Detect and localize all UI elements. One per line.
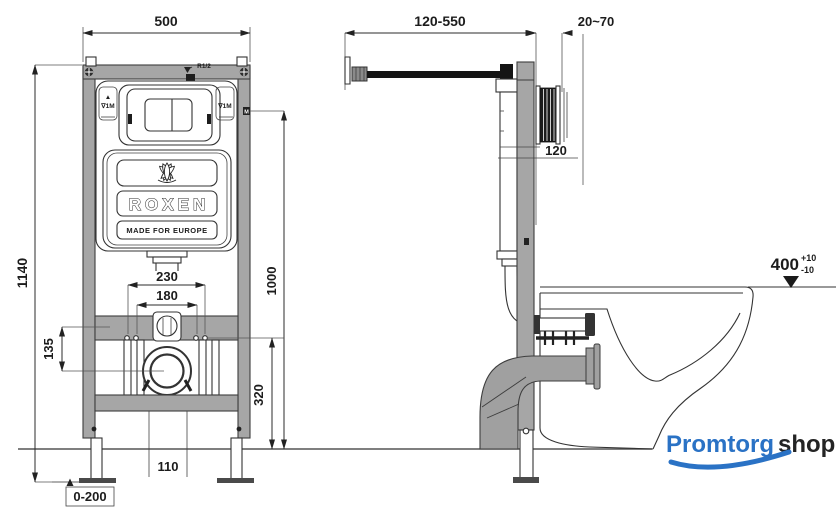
- cistern-body-side: [500, 92, 517, 251]
- leg-pin-right: [237, 427, 242, 432]
- dim-400-tol-minus: -10: [801, 265, 814, 275]
- dim-110: 110: [158, 459, 179, 474]
- mount-hole: [194, 336, 199, 341]
- dim-500: 500: [154, 13, 178, 29]
- mounting-studs: [534, 313, 595, 345]
- supply-union: [352, 67, 367, 81]
- dim-135: 135: [41, 338, 56, 360]
- water-supply: [345, 33, 513, 90]
- dim-1000: 1000: [264, 267, 279, 296]
- dim-1140: 1140: [14, 258, 30, 289]
- watermark-logo: Promtorg shop: [666, 431, 835, 467]
- flush-bellows: [536, 86, 567, 144]
- foot-plate-left: [79, 478, 116, 483]
- dim-400-tol-plus: +10: [801, 253, 816, 263]
- dim-230: 230: [156, 269, 178, 284]
- outlet-flange-lip: [594, 344, 600, 389]
- bellows-flange-right: [556, 86, 560, 144]
- height-arrow: [783, 276, 799, 288]
- dim-320: 320: [251, 384, 266, 406]
- frame-top-bar: [83, 65, 250, 79]
- post-foot: [513, 477, 539, 483]
- cistern-lid-side: [496, 79, 519, 92]
- dim-120-550: 120-550: [414, 13, 466, 29]
- watermark-primary: Promtorg: [666, 431, 774, 458]
- brand-text: ROXEN: [129, 195, 209, 214]
- plate-latch-right: [207, 114, 211, 124]
- supply-wall-elbow: [345, 57, 350, 84]
- dim-120: 120: [545, 143, 567, 158]
- foot-plate-right: [217, 478, 254, 483]
- cistern-neck-flange: [147, 251, 187, 257]
- supply-valve: [500, 64, 513, 81]
- level-mark-right: ∇1M: [217, 102, 231, 110]
- stud-column: [199, 340, 206, 395]
- dim-0-200: 0-200: [73, 489, 106, 504]
- side-dimensions: 120-550 20~70 120 400 +10 -10: [345, 13, 836, 288]
- cistern-neck: [153, 257, 181, 263]
- dim-400: 400: [771, 255, 799, 274]
- lower-crossbar: [95, 395, 238, 411]
- leg-right: [231, 438, 242, 479]
- drain-assembly: [95, 312, 238, 477]
- front-view: ▲ ∇1M ∇1M ROXEN MADE FOR EUROPE: [14, 13, 284, 506]
- stud-cap-right: [585, 313, 595, 336]
- tagline-text: MADE FOR EUROPE: [126, 226, 207, 235]
- stud-cap-left: [534, 315, 540, 334]
- stud-sleeve: [536, 318, 587, 331]
- drawing-canvas: ▲ ∇1M ∇1M ROXEN MADE FOR EUROPE: [0, 0, 840, 525]
- supply-pipe: [367, 71, 502, 78]
- adjustable-legs: [79, 427, 254, 483]
- level-mark-arrow: ▲: [105, 94, 111, 101]
- frame-right-rail: [238, 66, 250, 438]
- outlet-flange: [586, 348, 594, 384]
- frame-left-rail: [83, 66, 95, 438]
- stud-column: [124, 340, 131, 395]
- leg-left: [91, 438, 102, 479]
- level-m-mark-side: [524, 238, 529, 245]
- brand-panel: ROXEN MADE FOR EUROPE: [103, 150, 231, 271]
- post-leg: [520, 430, 533, 478]
- installation-drawing: ▲ ∇1M ∇1M ROXEN MADE FOR EUROPE: [0, 0, 840, 525]
- stud-column: [212, 340, 219, 395]
- leg-pin-left: [92, 427, 97, 432]
- hanger-ear-right: [237, 57, 247, 66]
- dim-180: 180: [156, 288, 178, 303]
- hanger-ear-left: [86, 57, 96, 66]
- level-mark-left: ∇1M: [100, 102, 114, 110]
- side-view: 120-550 20~70 120 400 +10 -10: [345, 13, 836, 483]
- dim-20-70: 20~70: [578, 14, 615, 29]
- post-leg-pin: [523, 428, 529, 434]
- plate-latch-left: [128, 114, 132, 124]
- thread-label: R1/2: [197, 63, 211, 70]
- bellows-flange-left: [536, 86, 540, 144]
- level-m-label: M: [244, 110, 249, 116]
